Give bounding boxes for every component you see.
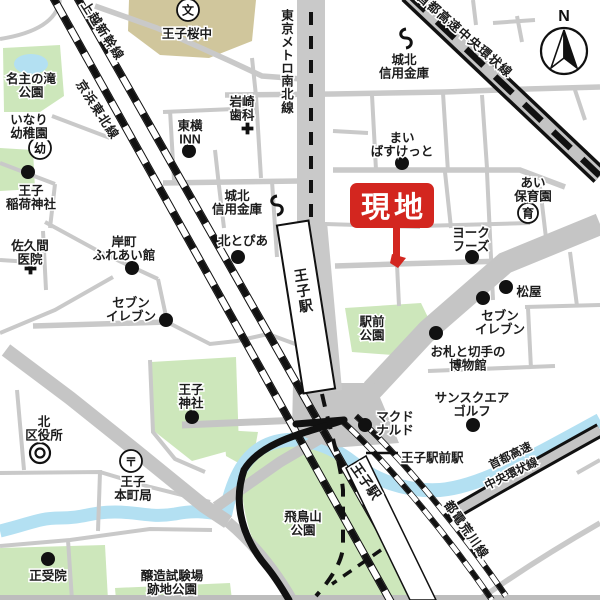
poi-dot-seven-eleven-west <box>159 313 173 327</box>
poi-dot-stamp-museum <box>429 326 443 340</box>
poi-dot-oji-inari-shrine <box>21 165 35 179</box>
nursery-icon: 育 <box>518 203 538 223</box>
poi-dot-kishimachi-hall <box>125 261 139 275</box>
label-metro-namboku-line: 東京メトロ南北線 <box>281 8 295 115</box>
kindergarten-icon-char: 幼 <box>34 141 46 156</box>
label-york-foods: ヨークフーズ <box>452 226 490 254</box>
label-hokutopia: 北とぴあ <box>218 233 268 248</box>
label-jozo-park: 醸造試験場跡地公園 <box>141 568 204 597</box>
ward-office-icon <box>30 443 50 463</box>
bottom-edge-road <box>0 595 600 600</box>
school-icon: 文 <box>177 0 199 21</box>
poi-dot-sunsquare-golf <box>466 418 480 432</box>
school-icon-char: 文 <box>182 3 195 18</box>
post-office-icon-char: 〒 <box>125 455 137 469</box>
nursery-icon-char: 育 <box>522 206 534 221</box>
label-oji-shrine: 王子神社 <box>178 383 204 411</box>
road-riverside <box>182 420 300 425</box>
label-seven-eleven-west: セブンイレブン <box>106 295 156 324</box>
label-seven-eleven-east: セブンイレブン <box>475 308 525 337</box>
label-inari-kindergarten: いなり幼稚園 <box>10 113 48 141</box>
label-mcdonalds: マクドナルド <box>376 410 414 438</box>
label-toyoko-inn: 東横INN <box>177 118 203 147</box>
label-ojiekimae-station: 王子駅前駅 <box>401 450 464 465</box>
site-marker-pointer <box>393 225 400 257</box>
label-iwasaki-dental: 岩崎歯科 <box>228 94 255 123</box>
poi-dot-mcdonalds <box>358 418 372 432</box>
label-matsuya: 松屋 <box>516 284 542 299</box>
label-school: 王子桜中 <box>162 26 212 41</box>
label-ekimae-park: 駅前公園 <box>358 314 385 343</box>
site-marker-label: 現地 <box>361 191 427 224</box>
poi-dot-oji-shrine <box>185 410 199 424</box>
nanushi-pond <box>14 54 48 74</box>
poi-dot-seven-eleven-east <box>476 291 490 305</box>
map-canvas: 王子駅 王子駅 文 幼 育 <box>0 0 600 600</box>
compass-n-label: N <box>558 8 570 25</box>
label-shojuin: 正受院 <box>29 568 67 583</box>
poi-dot-shojuin <box>41 552 55 566</box>
post-office-icon: 〒 <box>120 450 142 472</box>
poi-dot-hokutopia <box>231 250 245 264</box>
poi-dot-matsuya <box>499 280 513 294</box>
